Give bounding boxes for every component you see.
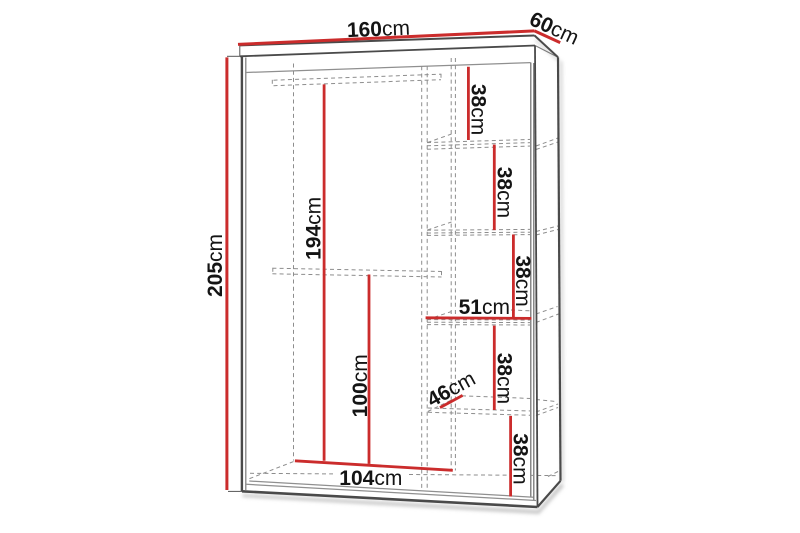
svg-text:194cm: 194cm <box>302 197 325 260</box>
svg-text:160cm: 160cm <box>346 17 410 43</box>
svg-text:104cm: 104cm <box>339 467 402 490</box>
svg-text:38cm: 38cm <box>511 255 534 306</box>
svg-text:38cm: 38cm <box>492 353 515 404</box>
svg-text:38cm: 38cm <box>467 84 490 135</box>
svg-text:38cm: 38cm <box>492 167 515 218</box>
svg-text:38cm: 38cm <box>509 433 532 484</box>
svg-text:51cm: 51cm <box>459 296 510 319</box>
svg-text:100cm: 100cm <box>349 354 372 417</box>
svg-text:205cm: 205cm <box>204 234 227 297</box>
